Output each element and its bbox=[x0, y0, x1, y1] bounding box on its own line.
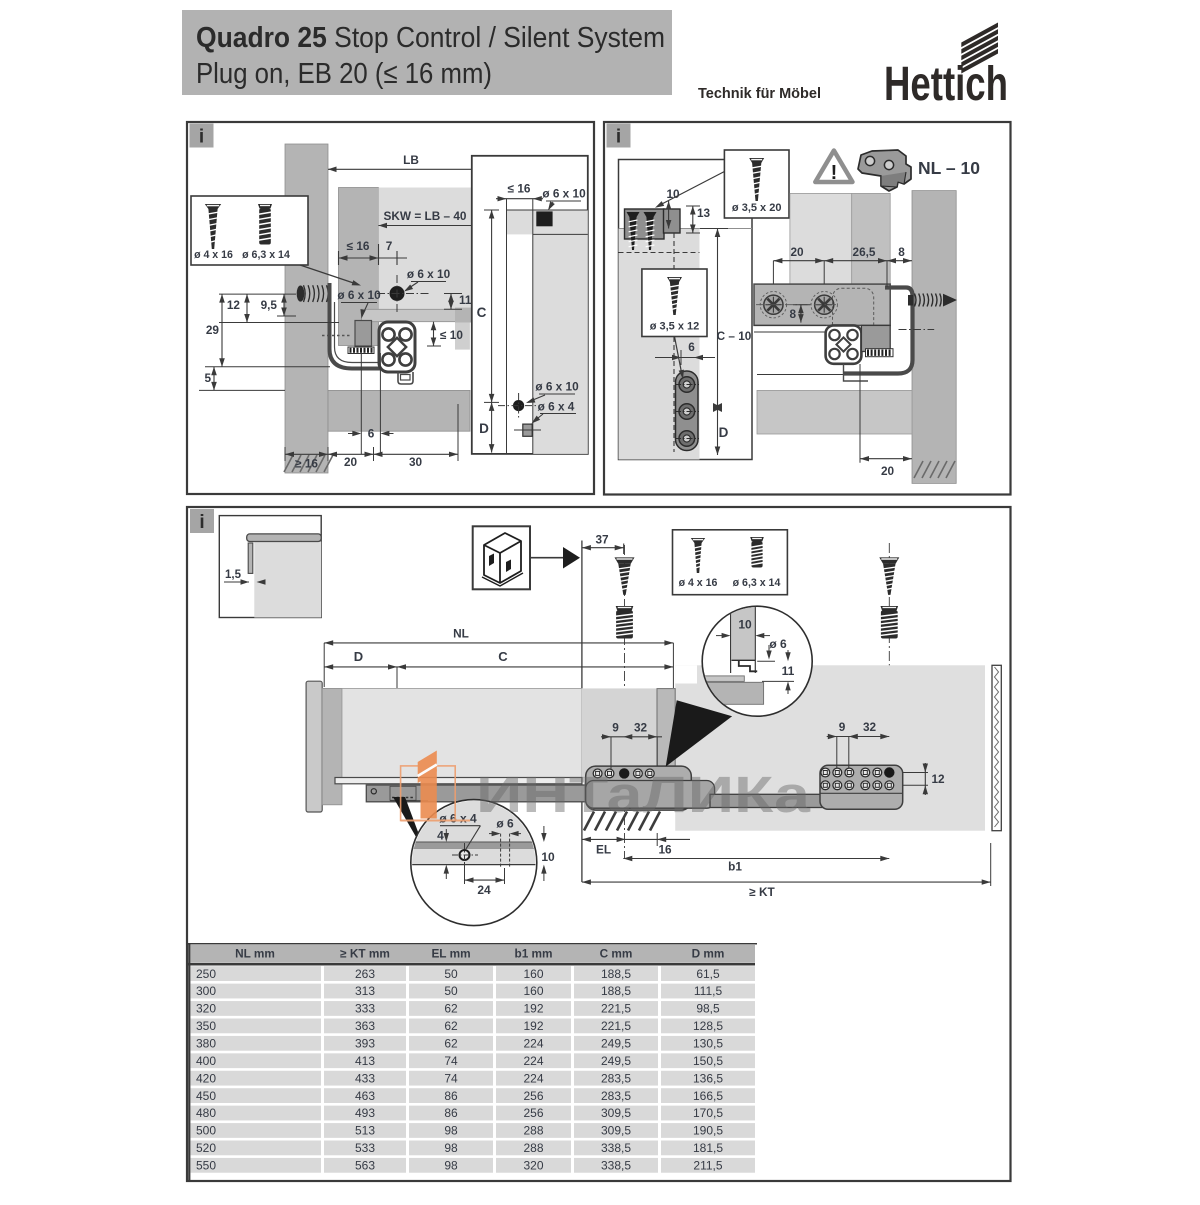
svg-text:D: D bbox=[354, 649, 363, 664]
svg-text:50: 50 bbox=[444, 984, 458, 998]
svg-text:400: 400 bbox=[196, 1054, 216, 1068]
svg-text:7: 7 bbox=[386, 239, 393, 253]
svg-text:26,5: 26,5 bbox=[853, 245, 876, 259]
svg-text:9: 9 bbox=[839, 720, 846, 734]
svg-text:480: 480 bbox=[196, 1106, 216, 1120]
svg-text:ИНТаЛИКа: ИНТаЛИКа bbox=[476, 766, 811, 823]
svg-text:62: 62 bbox=[444, 1037, 458, 1051]
svg-text:283,5: 283,5 bbox=[601, 1071, 631, 1085]
svg-text:320: 320 bbox=[196, 1002, 216, 1016]
svg-text:29: 29 bbox=[206, 323, 220, 337]
svg-text:188,5: 188,5 bbox=[601, 967, 631, 981]
svg-text:D: D bbox=[479, 421, 489, 436]
svg-text:SKW = LB – 40: SKW = LB – 40 bbox=[384, 209, 467, 223]
svg-text:433: 433 bbox=[355, 1071, 375, 1085]
svg-text:ø 6 x 10: ø 6 x 10 bbox=[542, 187, 586, 201]
svg-text:300: 300 bbox=[196, 984, 216, 998]
svg-text:C mm: C mm bbox=[600, 947, 633, 961]
svg-text:12: 12 bbox=[227, 298, 241, 312]
svg-text:563: 563 bbox=[355, 1159, 375, 1173]
svg-text:188,5: 188,5 bbox=[601, 984, 631, 998]
svg-text:320: 320 bbox=[523, 1159, 543, 1173]
svg-text:!: ! bbox=[831, 162, 838, 184]
svg-text:333: 333 bbox=[355, 1002, 375, 1016]
svg-text:13: 13 bbox=[697, 206, 711, 220]
svg-text:b1 mm: b1 mm bbox=[514, 947, 552, 961]
svg-text:160: 160 bbox=[523, 984, 543, 998]
svg-text:309,5: 309,5 bbox=[601, 1106, 631, 1120]
svg-text:D mm: D mm bbox=[692, 947, 725, 961]
svg-text:ø 6,3 x 14: ø 6,3 x 14 bbox=[733, 577, 781, 589]
svg-text:Quadro 25 Stop Control / Silen: Quadro 25 Stop Control / Silent System bbox=[196, 22, 665, 54]
svg-text:b1: b1 bbox=[728, 860, 742, 874]
svg-text:363: 363 bbox=[355, 1019, 375, 1033]
svg-text:20: 20 bbox=[790, 245, 804, 259]
svg-text:9,5: 9,5 bbox=[261, 298, 278, 312]
svg-text:263: 263 bbox=[355, 967, 375, 981]
svg-text:32: 32 bbox=[634, 721, 648, 735]
svg-text:338,5: 338,5 bbox=[601, 1141, 631, 1155]
svg-text:313: 313 bbox=[355, 984, 375, 998]
svg-text:≤ 10: ≤ 10 bbox=[440, 328, 463, 342]
svg-text:LB: LB bbox=[403, 153, 419, 167]
svg-text:380: 380 bbox=[196, 1037, 216, 1051]
svg-text:9: 9 bbox=[612, 721, 619, 735]
svg-text:11: 11 bbox=[459, 293, 472, 307]
svg-text:224: 224 bbox=[523, 1037, 543, 1051]
svg-text:520: 520 bbox=[196, 1141, 216, 1155]
svg-text:463: 463 bbox=[355, 1089, 375, 1103]
svg-text:98: 98 bbox=[444, 1141, 458, 1155]
svg-text:Plug on, EB 20 (≤ 16 mm): Plug on, EB 20 (≤ 16 mm) bbox=[196, 58, 492, 90]
svg-text:420: 420 bbox=[196, 1071, 216, 1085]
svg-text:Technik für Möbel: Technik für Möbel bbox=[698, 86, 821, 102]
svg-text:224: 224 bbox=[523, 1071, 543, 1085]
svg-text:ø 6 x 4: ø 6 x 4 bbox=[538, 400, 575, 414]
svg-text:ø 6 x 10: ø 6 x 10 bbox=[535, 380, 579, 394]
svg-text:136,5: 136,5 bbox=[693, 1071, 723, 1085]
svg-text:128,5: 128,5 bbox=[693, 1019, 723, 1033]
svg-text:ø 6: ø 6 bbox=[769, 637, 787, 651]
svg-text:130,5: 130,5 bbox=[693, 1037, 723, 1051]
svg-text:ø 4 x 16: ø 4 x 16 bbox=[679, 577, 718, 589]
svg-text:≥ KT: ≥ KT bbox=[749, 885, 775, 899]
svg-text:ø 6 x 10: ø 6 x 10 bbox=[407, 267, 451, 281]
svg-text:533: 533 bbox=[355, 1141, 375, 1155]
svg-text:ø 6 x 4: ø 6 x 4 bbox=[439, 812, 477, 826]
svg-text:8: 8 bbox=[898, 245, 905, 259]
svg-text:EL: EL bbox=[596, 843, 611, 857]
svg-text:EL mm: EL mm bbox=[431, 947, 470, 961]
svg-text:309,5: 309,5 bbox=[601, 1124, 631, 1138]
svg-text:37: 37 bbox=[595, 533, 609, 547]
svg-text:11: 11 bbox=[782, 664, 795, 678]
svg-text:74: 74 bbox=[444, 1054, 458, 1068]
svg-text:256: 256 bbox=[523, 1106, 543, 1120]
svg-text:221,5: 221,5 bbox=[601, 1019, 631, 1033]
svg-text:86: 86 bbox=[444, 1106, 458, 1120]
svg-text:≤ 16: ≤ 16 bbox=[508, 182, 531, 196]
svg-text:≥ 16: ≥ 16 bbox=[295, 457, 318, 471]
svg-text:413: 413 bbox=[355, 1054, 375, 1068]
svg-text:224: 224 bbox=[523, 1054, 543, 1068]
svg-text:50: 50 bbox=[444, 967, 458, 981]
svg-text:NL – 10: NL – 10 bbox=[918, 158, 980, 178]
svg-text:ø 3,5 x 12: ø 3,5 x 12 bbox=[650, 321, 700, 333]
svg-text:98,5: 98,5 bbox=[696, 1002, 720, 1016]
svg-text:62: 62 bbox=[444, 1002, 458, 1016]
svg-text:61,5: 61,5 bbox=[696, 967, 720, 981]
svg-text:249,5: 249,5 bbox=[601, 1037, 631, 1051]
svg-text:6: 6 bbox=[368, 427, 375, 441]
svg-text:D: D bbox=[719, 425, 729, 440]
svg-text:10: 10 bbox=[738, 618, 752, 632]
svg-text:Hettich: Hettich bbox=[884, 58, 1008, 111]
svg-text:513: 513 bbox=[355, 1124, 375, 1138]
svg-text:166,5: 166,5 bbox=[693, 1089, 723, 1103]
svg-text:249,5: 249,5 bbox=[601, 1054, 631, 1068]
svg-text:i: i bbox=[616, 127, 621, 148]
svg-text:98: 98 bbox=[444, 1124, 458, 1138]
svg-text:221,5: 221,5 bbox=[601, 1002, 631, 1016]
svg-text:8: 8 bbox=[789, 307, 796, 321]
svg-text:250: 250 bbox=[196, 967, 216, 981]
svg-text:≥ KT mm: ≥ KT mm bbox=[340, 947, 390, 961]
svg-text:62: 62 bbox=[444, 1019, 458, 1033]
svg-text:98: 98 bbox=[444, 1159, 458, 1173]
svg-text:C – 10: C – 10 bbox=[717, 329, 752, 343]
svg-text:30: 30 bbox=[409, 455, 423, 469]
svg-text:1,5: 1,5 bbox=[225, 569, 242, 581]
svg-text:ø 3,5 x 20: ø 3,5 x 20 bbox=[732, 202, 782, 214]
svg-text:ø 6,3 x 14: ø 6,3 x 14 bbox=[242, 249, 290, 261]
svg-text:74: 74 bbox=[444, 1071, 458, 1085]
svg-text:393: 393 bbox=[355, 1037, 375, 1051]
svg-text:338,5: 338,5 bbox=[601, 1159, 631, 1173]
svg-text:32: 32 bbox=[863, 720, 877, 734]
svg-text:550: 550 bbox=[196, 1159, 216, 1173]
svg-text:i: i bbox=[199, 127, 204, 148]
svg-text:493: 493 bbox=[355, 1106, 375, 1120]
svg-text:86: 86 bbox=[444, 1089, 458, 1103]
svg-text:ø 4 x 16: ø 4 x 16 bbox=[194, 249, 233, 261]
svg-text:211,5: 211,5 bbox=[693, 1159, 722, 1173]
svg-text:450: 450 bbox=[196, 1089, 216, 1103]
svg-text:20: 20 bbox=[881, 464, 895, 478]
svg-text:20: 20 bbox=[344, 455, 358, 469]
svg-text:24: 24 bbox=[477, 883, 491, 897]
svg-text:ø 6 x 10: ø 6 x 10 bbox=[337, 288, 381, 302]
svg-text:181,5: 181,5 bbox=[693, 1141, 723, 1155]
svg-text:192: 192 bbox=[523, 1019, 543, 1033]
svg-text:288: 288 bbox=[523, 1141, 543, 1155]
svg-text:10: 10 bbox=[666, 187, 680, 201]
svg-text:500: 500 bbox=[196, 1124, 216, 1138]
svg-text:5: 5 bbox=[204, 371, 211, 385]
svg-text:192: 192 bbox=[523, 1002, 543, 1016]
svg-text:111,5: 111,5 bbox=[694, 984, 723, 998]
svg-text:288: 288 bbox=[523, 1124, 543, 1138]
svg-text:283,5: 283,5 bbox=[601, 1089, 631, 1103]
svg-text:150,5: 150,5 bbox=[693, 1054, 723, 1068]
svg-text:190,5: 190,5 bbox=[693, 1124, 723, 1138]
svg-text:12: 12 bbox=[932, 772, 946, 786]
svg-text:4: 4 bbox=[437, 829, 444, 843]
svg-text:C: C bbox=[498, 649, 508, 664]
svg-text:16: 16 bbox=[658, 843, 672, 857]
svg-text:C: C bbox=[477, 305, 487, 320]
svg-text:6: 6 bbox=[688, 340, 695, 354]
svg-text:NL: NL bbox=[453, 627, 469, 641]
svg-text:170,5: 170,5 bbox=[693, 1106, 723, 1120]
svg-text:≤ 16: ≤ 16 bbox=[347, 239, 370, 253]
svg-text:NL mm: NL mm bbox=[235, 947, 275, 961]
svg-text:10: 10 bbox=[541, 850, 555, 864]
svg-text:i: i bbox=[199, 512, 204, 533]
svg-text:160: 160 bbox=[523, 967, 543, 981]
svg-text:256: 256 bbox=[523, 1089, 543, 1103]
svg-text:350: 350 bbox=[196, 1019, 216, 1033]
